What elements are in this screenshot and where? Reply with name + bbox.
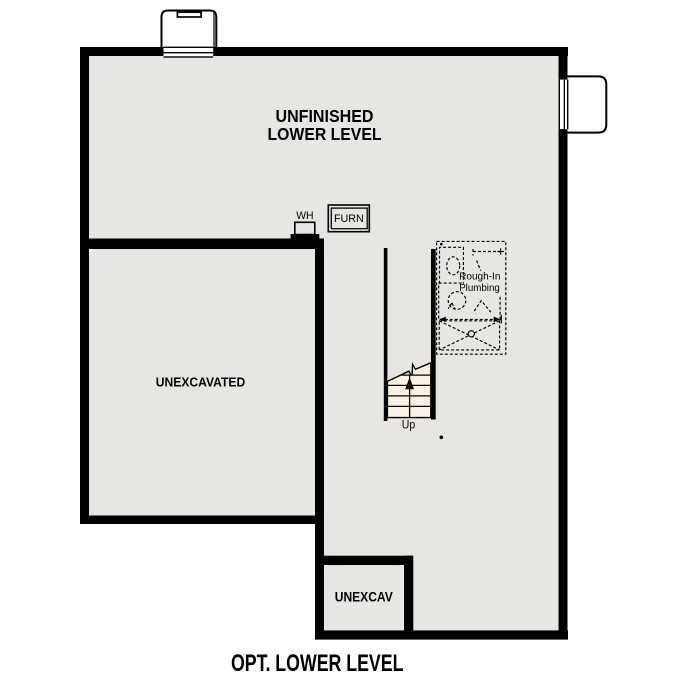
- svg-text:WH: WH: [296, 210, 313, 222]
- svg-text:Up: Up: [402, 418, 416, 432]
- svg-text:LOWER LEVEL: LOWER LEVEL: [268, 124, 382, 144]
- svg-text:UNEXCAVATED: UNEXCAVATED: [156, 375, 246, 390]
- svg-text:FURN: FURN: [334, 213, 364, 225]
- svg-text:Rough-In: Rough-In: [459, 270, 500, 282]
- svg-text:UNFINISHED: UNFINISHED: [276, 106, 374, 126]
- svg-text:UNEXCAV: UNEXCAV: [335, 589, 393, 604]
- svg-text:OPT. LOWER LEVEL: OPT. LOWER LEVEL: [231, 650, 404, 677]
- svg-text:Plumbing: Plumbing: [459, 282, 500, 294]
